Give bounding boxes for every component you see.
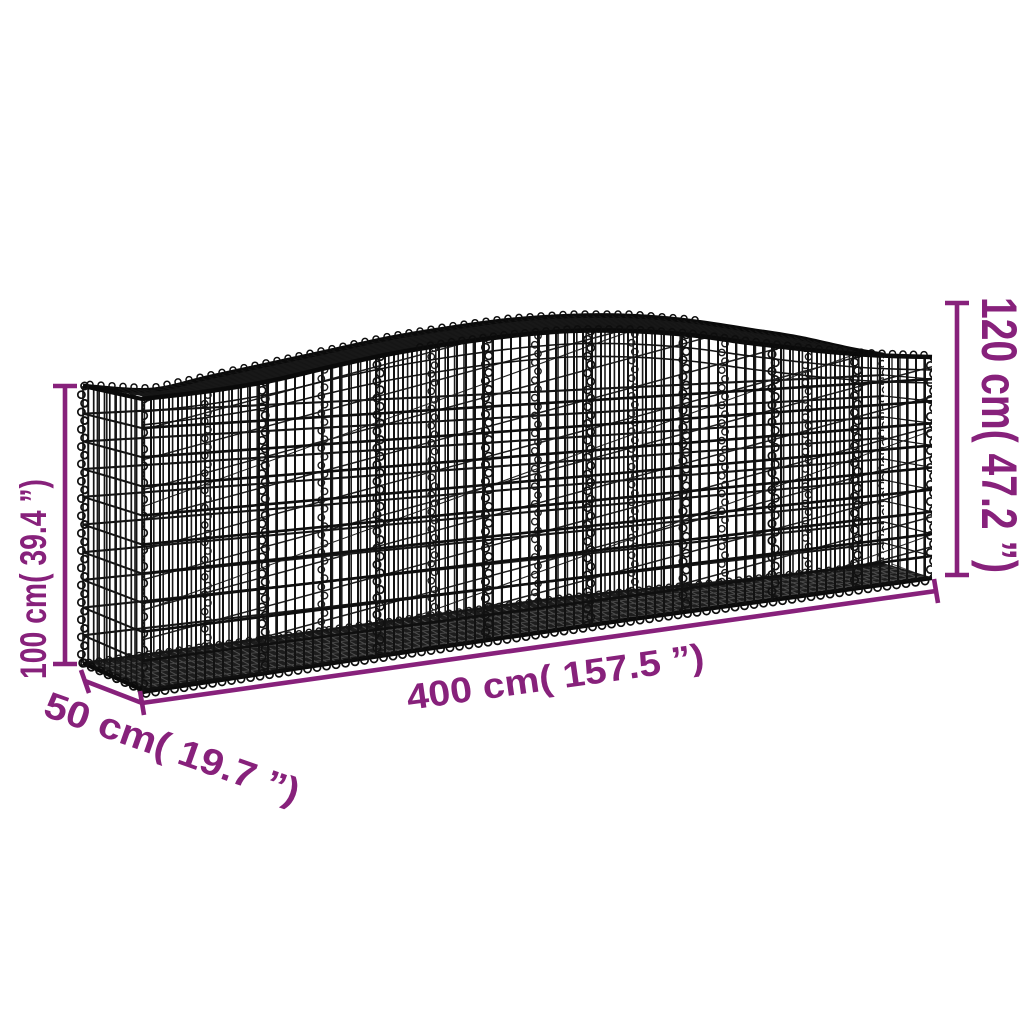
- svg-text:120 cm( 47.2 ”): 120 cm( 47.2 ”): [971, 297, 1024, 573]
- svg-text:100 cm( 39.4 ”): 100 cm( 39.4 ”): [13, 479, 54, 679]
